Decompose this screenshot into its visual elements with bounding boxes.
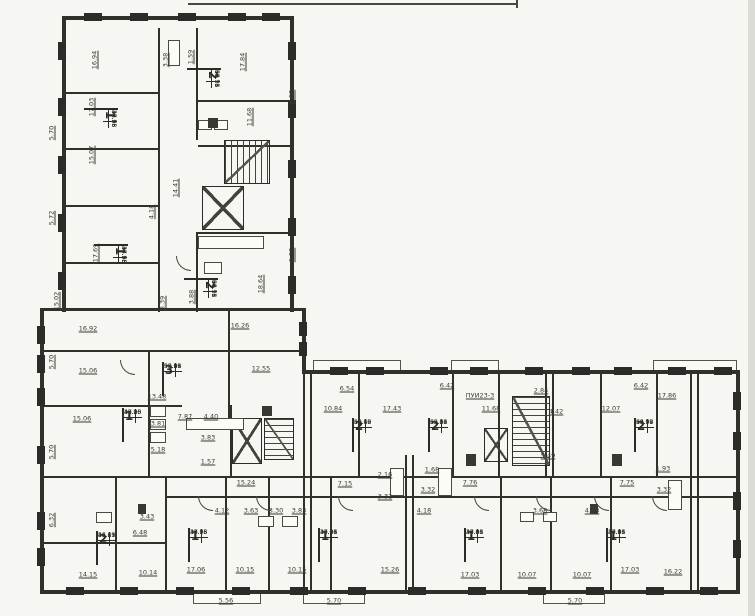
vent-shaft (208, 118, 218, 128)
wall (40, 308, 306, 311)
wall-pier (733, 492, 741, 510)
dimension-label: 6.42 (634, 383, 648, 390)
wall (62, 205, 158, 207)
wall (228, 308, 230, 420)
wall (62, 262, 158, 264)
dimension-label: 5.18 (151, 447, 165, 454)
wall-pier (232, 587, 250, 595)
dimension-label: 7.75 (620, 480, 634, 487)
wall (690, 372, 692, 592)
dimension-label: 5.70 (49, 126, 56, 140)
dimension-label: 3.68 (533, 508, 547, 515)
dimension-label: 17.69 (93, 244, 100, 263)
stair-hatch (264, 418, 294, 460)
area-value: 40.66 (465, 529, 484, 537)
wall-pier (733, 540, 741, 558)
area-value: 40.55 (189, 529, 208, 537)
apartment-area-table: 117.0334.9637.8140.66 (606, 528, 608, 562)
dimension-label: 17.03 (89, 98, 96, 117)
apartment-area-table: 234.7859.7162.9666.15 (187, 68, 221, 70)
dimension-label: 7.76 (463, 480, 477, 487)
apartment-area-table: 235.5660.0063.2166.42 (428, 418, 430, 452)
dimension-label: 17.43 (383, 406, 402, 413)
fixture (438, 468, 452, 496)
wall-pier (668, 367, 686, 375)
area-value: 40.66 (319, 529, 338, 537)
wall-pier (528, 587, 546, 595)
wall-pier (468, 587, 486, 595)
door-arc (652, 496, 667, 511)
wall-pier (348, 587, 366, 595)
wall-pier (586, 587, 604, 595)
dimension-label: 5.72 (49, 211, 56, 225)
dimension-label: 1.57 (201, 459, 215, 466)
wall-pier (614, 367, 632, 375)
scan-artifact (516, 0, 518, 8)
door-arc (338, 496, 353, 511)
area-value: 99.66 (163, 363, 182, 371)
fixture (198, 236, 264, 249)
dimension-label: 5.70 (327, 598, 341, 605)
wall-pier (299, 322, 307, 336)
scan-artifact (188, 3, 518, 5)
dimension-label: 10.15 (288, 567, 307, 574)
dimension-label: 17.03 (461, 572, 480, 579)
wall-pier (572, 367, 590, 375)
dimension-label: 15.24 (237, 480, 256, 487)
dimension-label: 16.26 (231, 323, 250, 330)
dimension-label: 5.49 (541, 453, 555, 460)
wall-pier (408, 587, 426, 595)
wall (40, 350, 302, 352)
wall-pier (120, 587, 138, 595)
vent-shaft (466, 454, 476, 466)
wall (40, 590, 740, 594)
area-value: 51.67 (97, 532, 116, 540)
dimension-label: 2.16 (378, 472, 392, 479)
apartment-area-table: 117.0634.9837.7540.55 (84, 108, 118, 110)
dimension-label: 3.83 (201, 435, 215, 442)
apartment-area-table: 117.0634.9837.7540.55 (94, 244, 128, 246)
dimension-label: 6.54 (340, 386, 354, 393)
fixture (204, 262, 222, 274)
dimension-label: 14.15 (79, 572, 98, 579)
wall (552, 372, 554, 478)
wall-pier (58, 214, 66, 232)
fixture (96, 512, 112, 523)
wall-pier (37, 388, 45, 406)
wall-pier (37, 355, 45, 373)
door-arc (120, 360, 135, 375)
dimension-label: 4.40 (204, 414, 218, 421)
dimension-label: 11.68 (247, 108, 254, 127)
wall (165, 496, 736, 498)
dimension-label: 15.06 (79, 368, 98, 375)
vent-shaft (612, 454, 622, 466)
wall (600, 372, 602, 478)
dimension-label: 6.42 (440, 383, 454, 390)
dimension-label: 4.18 (585, 508, 599, 515)
dimension-label: 1.68 (425, 467, 439, 474)
dimension-label: 6.52 (289, 248, 296, 262)
dimension-label: 10.07 (573, 572, 592, 579)
wall (500, 478, 502, 592)
dimension-label: 1.59 (188, 50, 195, 64)
dimension-label: 6.32 (49, 513, 56, 527)
dimension-label: 11.68 (482, 406, 501, 413)
dimension-label: 15.26 (381, 567, 400, 574)
dimension-label: 5.70 (568, 598, 582, 605)
elevator-shaft (484, 428, 508, 462)
wall (225, 478, 227, 592)
wall-pier (37, 446, 45, 464)
wall-pier (58, 156, 66, 174)
wall-pier (37, 548, 45, 566)
dimension-label: 17.84 (240, 53, 247, 72)
dimension-label: 10.07 (518, 572, 537, 579)
wall-pier (646, 587, 664, 595)
area-value: 69.99 (635, 419, 654, 427)
floor-plan-scan: 16.9417.843.381.5917.035.7015.076.5211.6… (0, 0, 755, 616)
apartment-area-table: 115.0637.2040.0542.90 (122, 408, 124, 442)
dimension-label: 6.52 (289, 90, 296, 104)
wall-pier (84, 13, 102, 21)
dimension-label: 3.38 (163, 53, 170, 67)
wall-pier (58, 42, 66, 60)
wall-pier (37, 326, 45, 344)
dimension-label: 4.42 (549, 409, 563, 416)
dimension-label: 4.12 (215, 508, 229, 515)
wall-pier (58, 98, 66, 116)
wall-pier (178, 13, 196, 21)
dimension-label: 3.63 (244, 508, 258, 515)
dimension-label: 17.86 (658, 393, 677, 400)
dimension-label: 4.18 (149, 205, 156, 219)
area-value: 66.15 (210, 279, 218, 298)
wall-pier (288, 42, 296, 60)
wall-pier (66, 587, 84, 595)
dimension-label: 16.94 (92, 51, 99, 70)
wall-pier (37, 512, 45, 530)
area-value: 40.55 (120, 245, 128, 264)
dimension-label: 14.41 (173, 179, 180, 198)
fixture (150, 406, 166, 417)
wall (405, 455, 407, 592)
area-value: 66.42 (429, 419, 448, 427)
door-arc (176, 256, 191, 271)
dimension-label: 2.84 (534, 388, 548, 395)
dimension-label: 6.48 (133, 530, 147, 537)
wall (198, 232, 292, 234)
wall (697, 372, 699, 592)
wall-pier (330, 367, 348, 375)
door-arc (198, 496, 213, 511)
wall-pier (262, 13, 280, 21)
dimension-label: 7.15 (338, 481, 352, 488)
dimension-label: 12.55 (252, 366, 271, 373)
wall-pier (130, 13, 148, 21)
fixture (282, 516, 298, 527)
dimension-label: 10.84 (324, 406, 343, 413)
dimension-label: 3.43 (140, 514, 154, 521)
wall-pier (525, 367, 543, 375)
apartment-area-table: 117.0334.9637.8140.66 (464, 528, 466, 562)
apartment-area-table: 232.6958.1659.4362.70 (352, 418, 354, 452)
apartment-area-table: 350.2693.9896.8199.66 (162, 362, 164, 396)
wall-pier (470, 367, 488, 375)
wall-pier (58, 272, 66, 290)
dimension-label: 5.56 (219, 598, 233, 605)
wall (198, 100, 292, 102)
area-value: 40.66 (607, 529, 626, 537)
dimension-label: 1.93 (656, 466, 670, 473)
wall (656, 372, 658, 478)
door-arc (474, 496, 489, 511)
stair-hatch (224, 140, 270, 184)
dimension-label: 15.06 (73, 416, 92, 423)
dimension-label: 3.83 (292, 508, 306, 515)
wall-pier (288, 276, 296, 294)
scan-artifact (748, 0, 755, 616)
wall (310, 374, 312, 592)
dimension-label: 4.18 (417, 508, 431, 515)
dimension-label: 16.92 (79, 326, 98, 333)
wall-pier (733, 432, 741, 450)
wall-pier (290, 587, 308, 595)
wall (412, 455, 414, 592)
wall (302, 308, 306, 374)
wall (165, 478, 167, 592)
fixture (168, 40, 180, 66)
apartment-area-table: 117.0634.9837.8140.66 (318, 528, 320, 562)
dimension-label: 3.32 (378, 494, 392, 501)
wall (303, 374, 305, 592)
apartment-area-table: 226.2945.1548.4151.67 (96, 531, 98, 565)
dimension-label: 15.02 (54, 292, 61, 311)
area-value: 62.70 (353, 419, 372, 427)
wall (498, 372, 500, 478)
wall-pier (430, 367, 448, 375)
wall-pier (366, 367, 384, 375)
dimension-label: 17.06 (187, 567, 206, 574)
dimension-label: 15.07 (89, 146, 96, 165)
dimension-label: 8.39 (160, 296, 167, 310)
dimension-label: ПУИ23-3 (466, 393, 494, 400)
fixture (258, 516, 274, 527)
wall-pier (714, 367, 732, 375)
apartment-area-table: 234.0863.5766.7869.99 (634, 418, 636, 452)
wall (62, 92, 158, 94)
dimension-label: 18.64 (258, 275, 265, 294)
apartment-area-table: 117.0634.9837.7540.55 (188, 528, 190, 562)
area-value: 66.15 (213, 69, 221, 88)
dimension-label: 5.70 (49, 355, 56, 369)
dimension-label: 7.87 (178, 414, 192, 421)
dimension-label: 5.70 (49, 445, 56, 459)
wall-pier (288, 160, 296, 178)
dimension-label: 3.32 (657, 487, 671, 494)
wall (158, 28, 160, 312)
dimension-label: 3.30 (269, 508, 283, 515)
dimension-label: 10.14 (139, 570, 158, 577)
elevator-shaft (202, 186, 244, 230)
dimension-label: 3.32 (421, 487, 435, 494)
area-value: 40.55 (110, 109, 118, 128)
fixture (150, 432, 166, 443)
dimension-label: 17.03 (621, 567, 640, 574)
apartment-area-table: 234.7859.7162.9666.15 (184, 278, 218, 280)
wall-pier (176, 587, 194, 595)
wall-pier (700, 587, 718, 595)
wall-pier (228, 13, 246, 21)
dimension-label: 10.15 (236, 567, 255, 574)
vent-shaft (262, 406, 272, 416)
dimension-label: 3.81 (151, 421, 165, 428)
dimension-label: 12.07 (602, 406, 621, 413)
wall-pier (288, 218, 296, 236)
area-value: 42.90 (123, 409, 142, 417)
wall (62, 148, 158, 150)
wall-pier (733, 392, 741, 410)
fixture (668, 480, 682, 510)
dimension-label: 3.88 (189, 290, 196, 304)
dimension-label: 16.22 (664, 569, 683, 576)
wall-pier (299, 342, 307, 356)
